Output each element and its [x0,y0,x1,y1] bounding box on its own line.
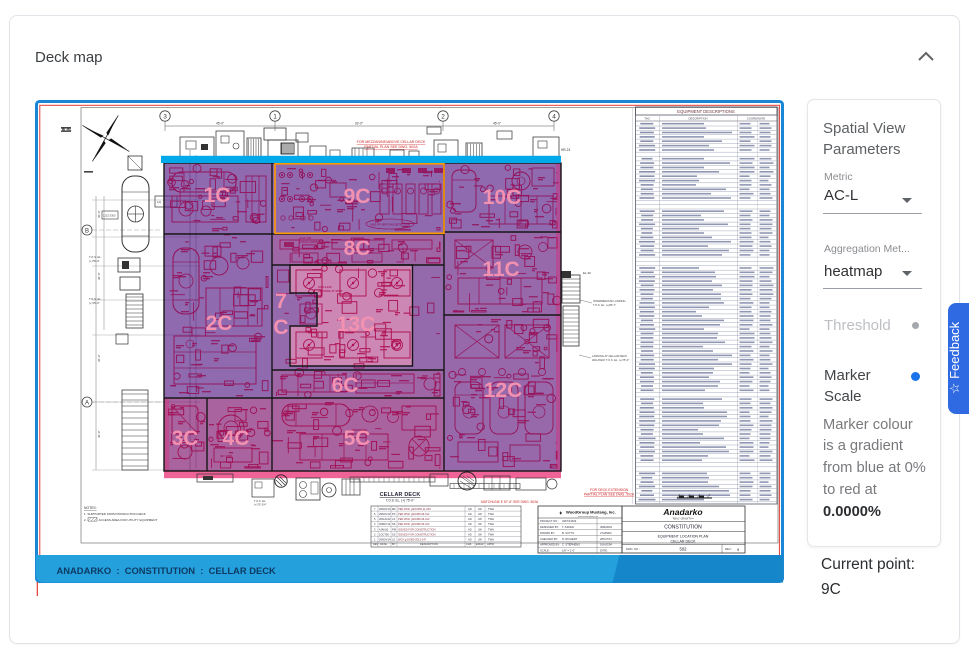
svg-text:3C: 3C [172,427,199,450]
svg-text:2C: 2C [206,312,233,335]
svg-text:ACCESS AREA FOR UTILITY EQUIPM: ACCESS AREA FOR UTILITY EQUIPMENT [99,518,158,522]
svg-text:9C: 9C [344,185,371,208]
svg-text:CHK: CHK [466,542,472,546]
svg-text:JW: JW [478,507,482,511]
svg-text:DWG. NO.:: DWG. NO.: [626,547,640,551]
svg-text:4JAN10: 4JAN10 [379,527,389,531]
svg-text:AD: AD [468,512,472,516]
svg-text:DATE:: DATE: [600,549,608,553]
svg-text:AD: AD [468,538,472,542]
svg-text:SS: SS [392,532,396,536]
svg-text:DRAWN BY:: DRAWN BY: [540,531,555,535]
svg-text:30AUG12: 30AUG12 [379,517,391,521]
svg-text:“REAL” GROWTH™: “REAL” GROWTH™ [672,518,694,521]
svg-text:EL.30: EL.30 [583,271,591,275]
svg-text:LOCAL CONTROL PANEL: LOCAL CONTROL PANEL [300,240,331,244]
svg-text:REV: REV [373,542,379,546]
svg-text:JW: JW [478,512,482,516]
svg-text:4367/13463: 4367/13463 [562,519,577,523]
svg-text:10C: 10C [483,186,522,209]
svg-text:DATE: DATE [380,542,387,546]
svg-text:KAA-1140: KAA-1140 [318,285,332,289]
svg-text:MATCHLINE E 57'-6" SEE DWG. 50: MATCHLINE E 57'-6" SEE DWG. 502A [481,500,539,504]
svg-text:PARTIAL PLAN SEE DWG. 502A: PARTIAL PLAN SEE DWG. 502A [584,493,635,497]
svg-text:COORDINATE: COORDINATE [747,117,766,121]
svg-text:SCALE:: SCALE: [540,549,550,553]
svg-text:EQUIPMENT LOCATION PLAN: EQUIPMENT LOCATION PLAN [658,535,709,539]
svg-text:AD: AD [468,522,472,526]
svg-text:DESCRIPTION: DESCRIPTION [420,542,438,546]
svg-text:B: B [85,228,89,234]
svg-text:JW: JW [478,538,482,542]
svg-text:PARTIAL PLAN SEE DWG. 502A: PARTIAL PLAN SEE DWG. 502A [364,145,418,149]
svg-text:26MAY12: 26MAY12 [379,522,391,526]
svg-text:1OCT06: 1OCT06 [379,532,389,536]
svg-text:JW: JW [478,517,482,521]
svg-text:2.: 2. [84,518,87,522]
svg-text:LS: LS [392,517,395,521]
svg-text:27APR04: 27APR04 [600,531,612,535]
svg-text:FOR DECK EXTENSION: FOR DECK EXTENSION [590,488,629,492]
svg-text:T.O.S. EL. (+) 75'-0": T.O.S. EL. (+) 75'-0" [386,499,414,503]
svg-text:8C: 8C [344,237,371,260]
svg-text:R. RICHERT: R. RICHERT [562,537,578,541]
svg-text:1/8" = 1'-0": 1/8" = 1'-0" [562,549,575,553]
svg-text:12C: 12C [484,379,523,402]
svg-text:CONSTITUTION: CONSTITUTION [664,525,702,531]
svg-text:LINE OF VENT GAS DETECTION: LINE OF VENT GAS DETECTION [370,223,410,227]
svg-text:29NOV12: 29NOV12 [379,512,391,516]
svg-text:LCP-103: LCP-103 [300,236,311,240]
svg-text:T.O.S. EL.: T.O.S. EL. [254,499,266,503]
svg-text:CELLAR DECK: CELLAR DECK [671,540,697,544]
svg-text:16AUG04: 16AUG04 [600,543,612,547]
svg-text:28OCT04: 28OCT04 [600,537,612,541]
svg-text:45'-0": 45'-0" [493,122,501,126]
svg-text:TWH: TWH [488,538,494,542]
svg-text:AD: AD [468,527,472,531]
svg-text:AD: AD [468,517,472,521]
svg-text:11C: 11C [482,258,519,281]
svg-text:REV.:: REV.: [725,547,732,551]
svg-text:APPR: APPR [487,542,494,546]
svg-text:LANDING AT CELLAR DECK: LANDING AT CELLAR DECK [592,354,627,358]
svg-text:1222-2300: 1222-2300 [103,214,116,218]
svg-text:92'-0": 92'-0" [355,122,363,126]
svg-text:CHECKED BY:: CHECKED BY: [540,537,558,541]
svg-text:45'-0": 45'-0" [216,122,224,126]
svg-text:JW: JW [478,532,482,536]
svg-text:T. ASKEN: T. ASKEN [562,525,574,529]
svg-text:PER WGK gSO3456-11-009: PER WGK gSO3456-11-009 [398,507,431,511]
svg-text:PK: PK [392,512,396,516]
svg-text:C: C [273,316,288,339]
svg-text:(+)75'-0": (+)75'-0" [89,259,100,263]
svg-text:1C: 1C [204,184,231,207]
svg-text:BY: BY [392,542,396,546]
svg-text:(+)75'-0": (+)75'-0" [89,301,100,305]
svg-text:447-1000: 447-1000 [220,454,232,458]
svg-text:INTERMEDIATE LANDING: INTERMEDIATE LANDING [593,299,626,303]
svg-text:13C: 13C [337,313,376,336]
svg-text:DESIGNED BY:: DESIGNED BY: [540,525,559,529]
svg-text:TWH: TWH [488,512,494,516]
svg-text:APPROVED BY:: APPROVED BY: [540,543,560,547]
svg-text:TWH: TWH [488,517,494,521]
svg-text:PM: PM [392,527,396,531]
svg-text:PROJECT NO.:: PROJECT NO.: [540,519,559,523]
svg-text:TWH: TWH [488,532,494,536]
svg-text:C. STEPHENS: C. STEPHENS [562,543,580,547]
svg-text:AD: AD [468,507,472,511]
svg-text:1. SUPPORTED FROM PRODUCTION D: 1. SUPPORTED FROM PRODUCTION DECK [84,512,146,516]
svg-text:ISSUED FOR CONSTRUCTION: ISSUED FOR CONSTRUCTION [398,527,436,531]
svg-text:EQUIPMENT DESCRIPTIONS: EQUIPMENT DESCRIPTIONS [677,109,735,114]
svg-text:AD: AD [468,532,472,536]
svg-text:SS: SS [392,522,396,526]
svg-text:PER WGK gSO380-09-012: PER WGK gSO380-09-012 [398,522,430,526]
svg-text:(+)75'-3/4": (+)75'-3/4" [254,503,266,507]
svg-text:1: 1 [273,113,277,120]
svg-text:ANADARKO : CONSTITUTION :: ANADARKO : CONSTITUTION : CELLAR DECK [57,565,276,576]
svg-text:B. SCTTS: B. SCTTS [562,531,574,535]
svg-text:502: 502 [680,547,688,552]
svg-text:BL·BL: BL·BL [62,128,72,132]
svg-text:www.mustangeng.com: www.mustangeng.com [578,515,598,518]
svg-text:30'-0": 30'-0" [97,354,101,362]
svg-text:A: A [85,400,89,406]
svg-text:6C: 6C [332,374,359,397]
svg-text:TWH: TWH [488,527,494,531]
svg-text:TWH: TWH [488,507,494,511]
svg-text:ISSUED FOR CONSTRUCTION: ISSUED FOR CONSTRUCTION [398,532,436,536]
svg-text:NOTES:: NOTES: [84,506,97,510]
svg-text:3: 3 [163,113,167,120]
svg-text:JW: JW [478,522,482,526]
svg-text:PER WGK gSO380-09-012: PER WGK gSO380-09-012 [398,512,430,516]
svg-text:LS: LS [392,538,395,542]
svg-text:T.O.S. EL. (+)86'-7": T.O.S. EL. (+)86'-7" [593,303,616,307]
svg-text:PER WGK gSO380-09-012: PER WGK gSO380-09-012 [398,517,430,521]
svg-text:7: 7 [275,290,287,313]
svg-text:MF: MF [392,507,396,511]
svg-text:ENGR: ENGR [476,542,484,546]
svg-text:4: 4 [552,113,556,120]
svg-text:WALKWAY T.O.S. EL. (+)75'-0": WALKWAY T.O.S. EL. (+)75'-0" [592,358,629,362]
svg-text:30MAR04: 30MAR04 [600,525,612,529]
svg-text:DESCRIPTION: DESCRIPTION [688,117,707,121]
svg-text:26NOV14: 26NOV14 [379,538,391,542]
svg-text:30'-0": 30'-0" [97,272,101,280]
svg-text:WCK gSO380-2013-147: WCK gSO380-2013-147 [398,538,427,542]
svg-text:30'-0": 30'-0" [97,210,101,218]
svg-text:26NOV13: 26NOV13 [379,507,391,511]
svg-text:HR-23: HR-23 [561,148,570,152]
svg-text:FOR MEZZANINE/ABOVE CELLAR DEC: FOR MEZZANINE/ABOVE CELLAR DECK [357,140,426,144]
svg-text:30'-0": 30'-0" [97,430,101,438]
svg-text:5C: 5C [344,427,371,450]
svg-text:TWH: TWH [488,522,494,526]
svg-text:OPTIONAL AT SPLIT: OPTIONAL AT SPLIT [318,289,343,293]
svg-text:4C: 4C [223,427,250,450]
svg-text:Anadarko: Anadarko [662,507,702,517]
svg-text:LQ: LQ [157,200,162,204]
svg-text:TAG: TAG [644,117,650,121]
svg-text:JW: JW [478,527,482,531]
svg-text:2: 2 [441,113,445,120]
svg-text:CELLAR DECK: CELLAR DECK [380,492,421,498]
svg-text:WoodGroup Mustang, Inc.: WoodGroup Mustang, Inc. [566,510,616,515]
